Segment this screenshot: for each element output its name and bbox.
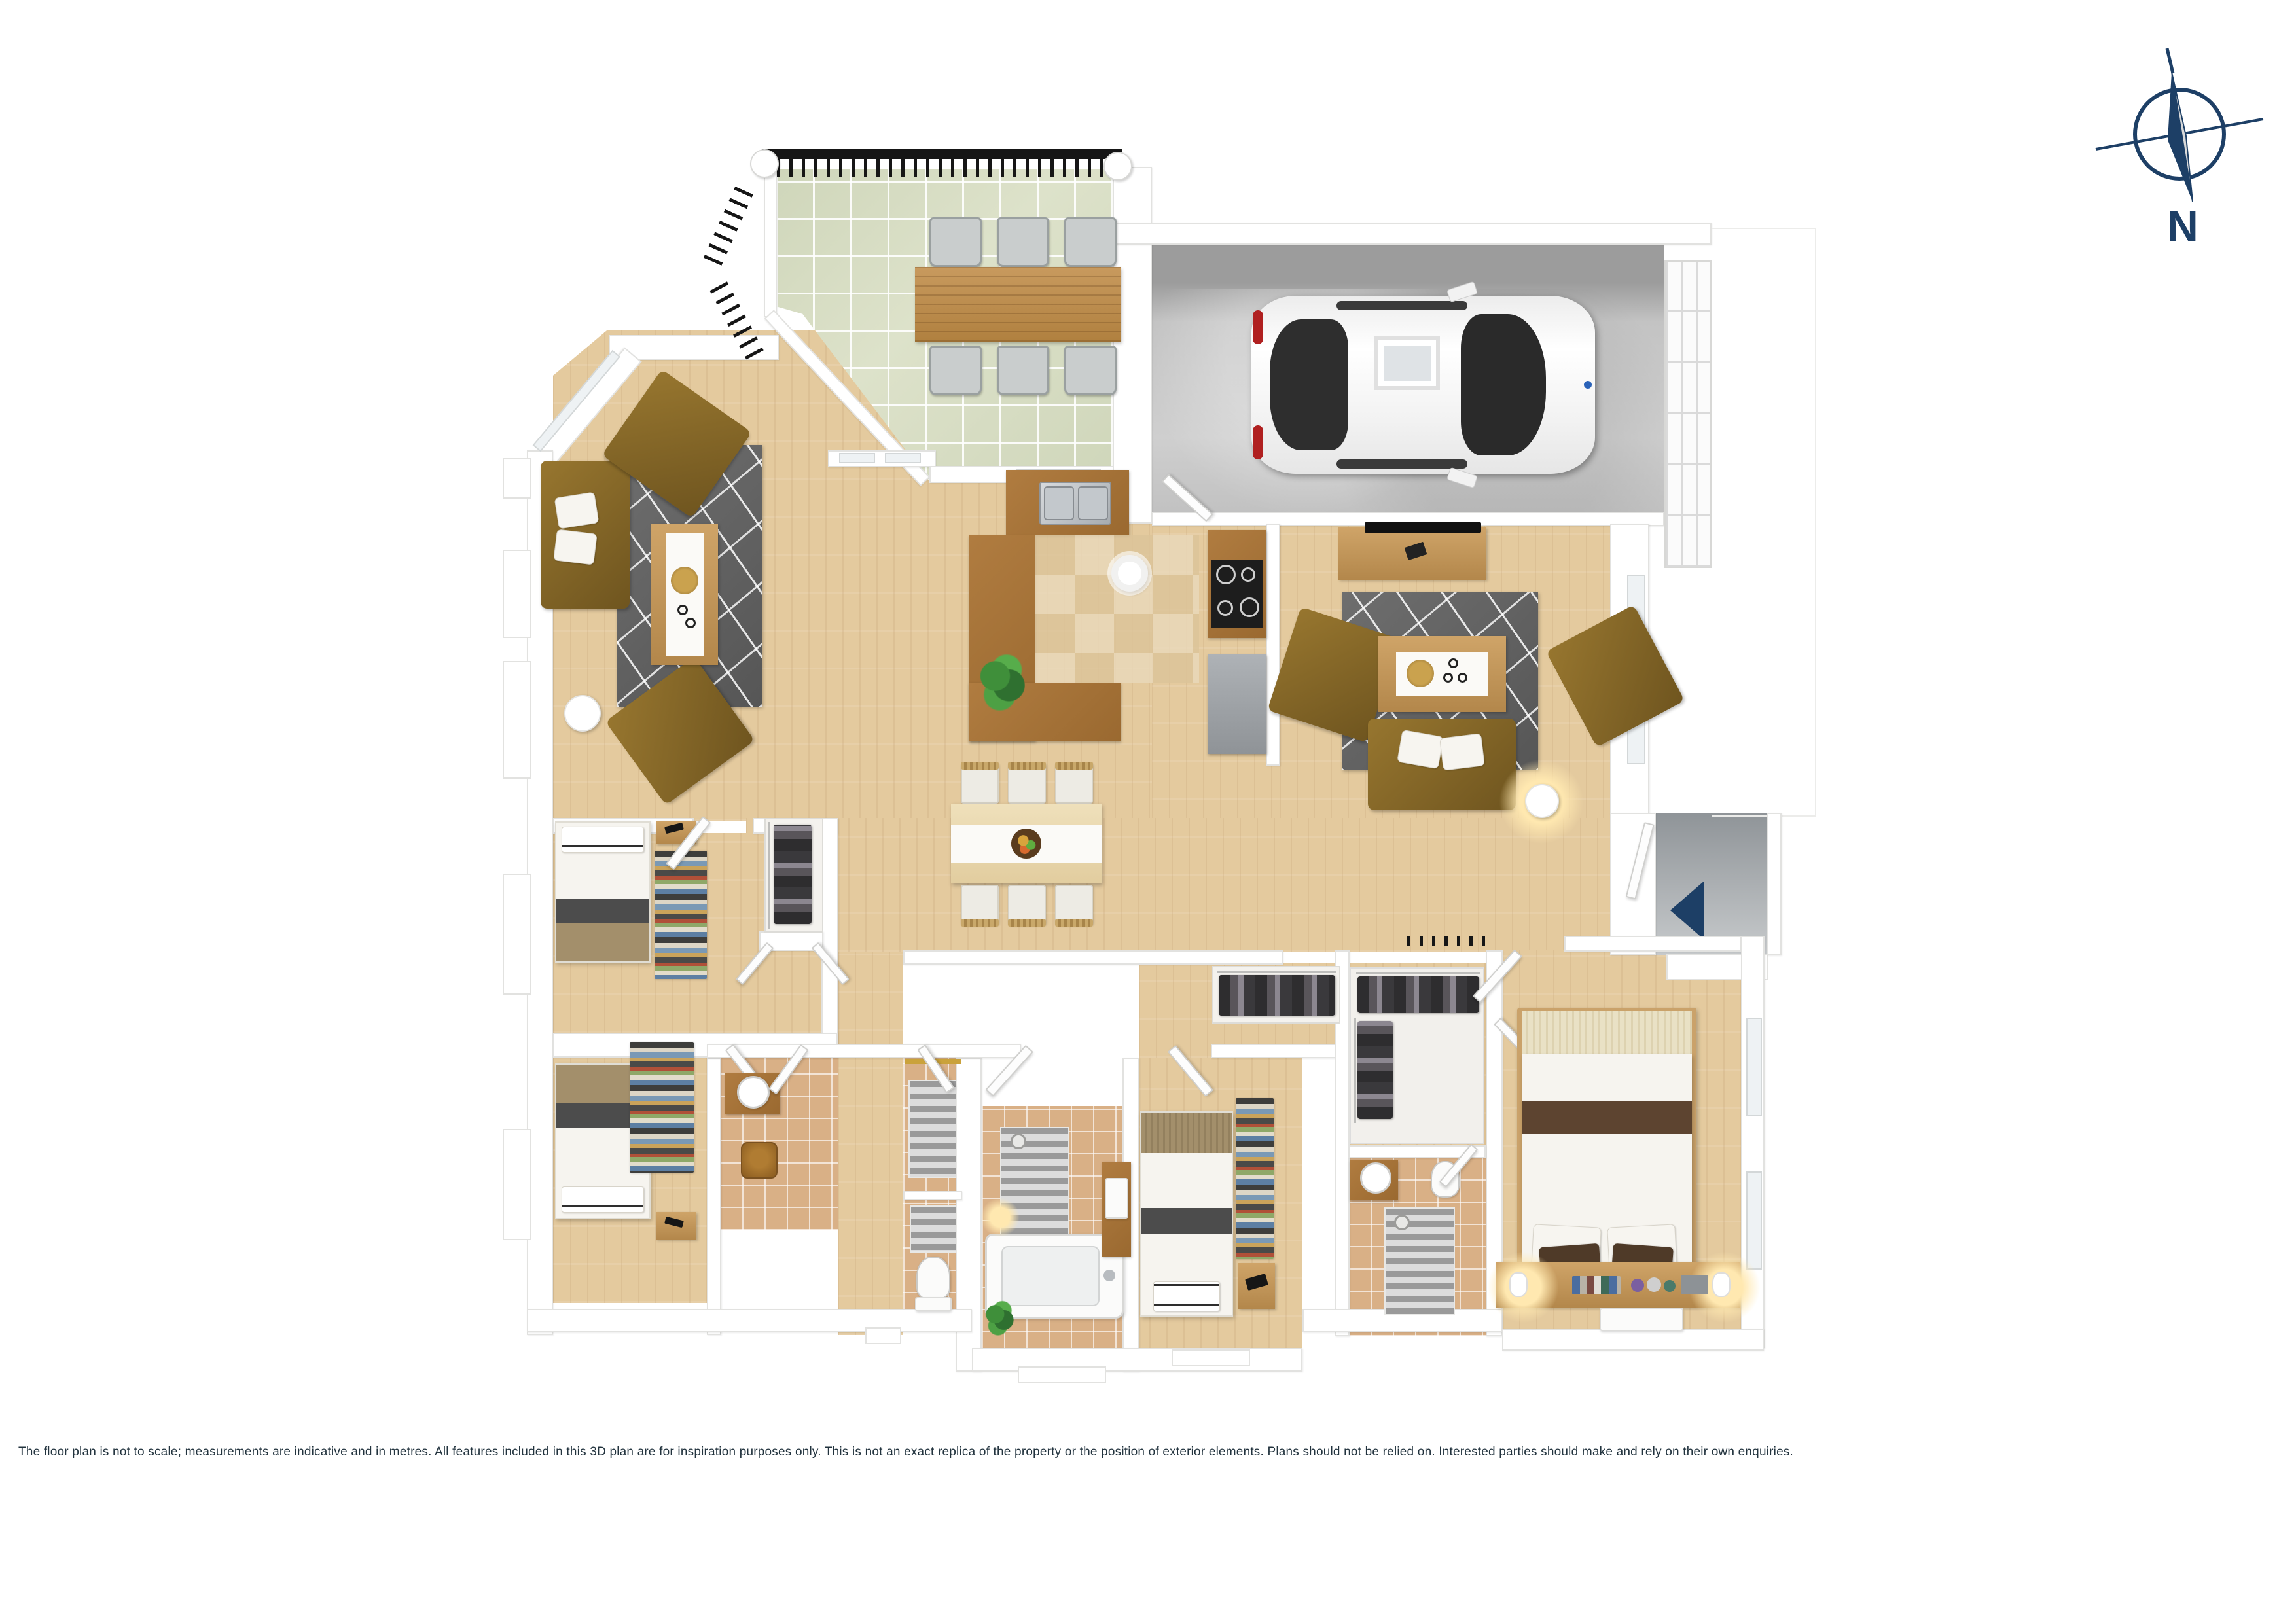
vanity-basin <box>1105 1178 1128 1219</box>
wall <box>764 167 777 317</box>
plant-icon <box>979 651 1025 713</box>
dining-chair <box>1008 763 1046 804</box>
candles-icon <box>980 1198 1020 1237</box>
wall <box>1113 223 1712 245</box>
tray-icon <box>1681 1275 1708 1294</box>
toilet-cistern <box>915 1297 952 1311</box>
vanity-basin <box>1360 1162 1391 1194</box>
wardrobe <box>1350 967 1484 1144</box>
master-window <box>1746 1018 1762 1116</box>
dining-chair <box>1008 885 1046 925</box>
shower-head-icon <box>1394 1215 1410 1230</box>
car-taillight <box>1253 310 1263 344</box>
loveseat <box>1368 719 1516 810</box>
window <box>503 874 531 995</box>
patio-post <box>1103 152 1132 181</box>
wall <box>1564 936 1741 952</box>
laundry-mat <box>908 1080 957 1178</box>
bed <box>1140 1111 1233 1317</box>
outdoor-chair <box>997 217 1049 267</box>
toilet <box>916 1257 950 1300</box>
car-badge-icon <box>1584 381 1592 389</box>
shower-head-icon <box>1011 1133 1026 1149</box>
bedroom-rug <box>630 1042 694 1173</box>
table-lamp-icon <box>1509 1272 1528 1297</box>
snack-bowl-icon <box>1407 660 1434 687</box>
bed <box>555 821 651 963</box>
window <box>1018 1366 1106 1383</box>
wall <box>903 1191 962 1200</box>
fruit-bowl-icon <box>1011 829 1041 859</box>
car-side-glass <box>1336 459 1467 469</box>
patio-post <box>750 149 779 178</box>
dining-table <box>951 804 1102 883</box>
threshold-icon <box>1407 936 1486 946</box>
coffee-table <box>1378 636 1506 712</box>
pendant-light-icon <box>1111 555 1148 592</box>
pergola-rail-icon <box>704 186 753 266</box>
cooktop <box>1211 560 1263 628</box>
coffee-table <box>651 524 718 665</box>
car-sunroof <box>1374 336 1440 390</box>
car <box>1251 296 1595 474</box>
bedroom-rug <box>655 851 707 979</box>
wall <box>821 818 838 1058</box>
sofa <box>541 461 630 609</box>
dining-chair <box>961 763 999 804</box>
snack-bowl-icon <box>671 567 698 594</box>
pergola-battens-icon <box>764 159 1121 177</box>
vanity-basin <box>737 1076 770 1109</box>
wall <box>1767 813 1782 955</box>
dining-chair <box>1055 885 1093 925</box>
wc-mat <box>910 1205 957 1253</box>
pergola-beam <box>762 149 1122 159</box>
bench <box>1600 1308 1683 1331</box>
bath-faucet-icon <box>1103 1270 1115 1281</box>
wall <box>903 950 1283 965</box>
floor-lamp-icon <box>564 695 601 732</box>
window <box>503 550 531 638</box>
wall <box>707 1044 1021 1058</box>
window <box>865 1327 901 1344</box>
dining-chair <box>961 885 999 925</box>
outdoor-chair <box>1064 217 1117 267</box>
outdoor-chair <box>1064 346 1117 395</box>
compass-icon: N <box>2088 33 2271 249</box>
kitchen-tile-floor <box>1035 535 1199 683</box>
bedroom-rug <box>1236 1098 1274 1259</box>
north-label: N <box>2167 202 2198 249</box>
wall <box>1266 524 1280 766</box>
decor-icon <box>1631 1279 1644 1292</box>
hallway-floor <box>746 818 1610 952</box>
tv <box>1365 522 1481 533</box>
car-rear-window <box>1270 319 1348 450</box>
car-taillight <box>1253 425 1263 459</box>
garage-door <box>1664 260 1712 568</box>
wardrobe <box>764 818 823 933</box>
wall <box>1502 1329 1764 1351</box>
wall <box>707 1058 721 1335</box>
plant-icon <box>985 1299 1014 1337</box>
fridge <box>1208 654 1266 754</box>
floor-lamp-icon <box>1525 784 1559 818</box>
outdoor-chair <box>929 346 982 395</box>
outdoor-dining-table <box>915 267 1121 342</box>
decor-icon <box>1647 1277 1661 1292</box>
floor-plan <box>0 0 2296 1623</box>
wardrobe <box>1212 966 1340 1024</box>
headboard <box>1522 1011 1692 1054</box>
kitchen-sink <box>1039 482 1111 525</box>
books-icon <box>1572 1276 1621 1294</box>
window <box>885 453 921 463</box>
window <box>839 453 875 463</box>
outdoor-chair <box>997 346 1049 395</box>
disclaimer-text: The floor plan is not to scale; measurem… <box>18 1445 2283 1459</box>
entry-porch <box>1656 813 1768 955</box>
window <box>503 1129 531 1240</box>
window <box>503 661 531 779</box>
window <box>1172 1349 1250 1366</box>
outdoor-chair <box>929 217 982 267</box>
window <box>503 458 531 499</box>
car-windshield <box>1461 314 1546 455</box>
dining-chair <box>1055 763 1093 804</box>
wall <box>527 1309 972 1332</box>
car-side-glass <box>1336 301 1467 310</box>
table-lamp-icon <box>1712 1272 1731 1297</box>
eave-outline <box>1712 228 1816 817</box>
laundry-basket-icon <box>741 1142 778 1179</box>
decor-icon <box>1664 1280 1676 1292</box>
hallway-floor <box>838 952 903 1335</box>
